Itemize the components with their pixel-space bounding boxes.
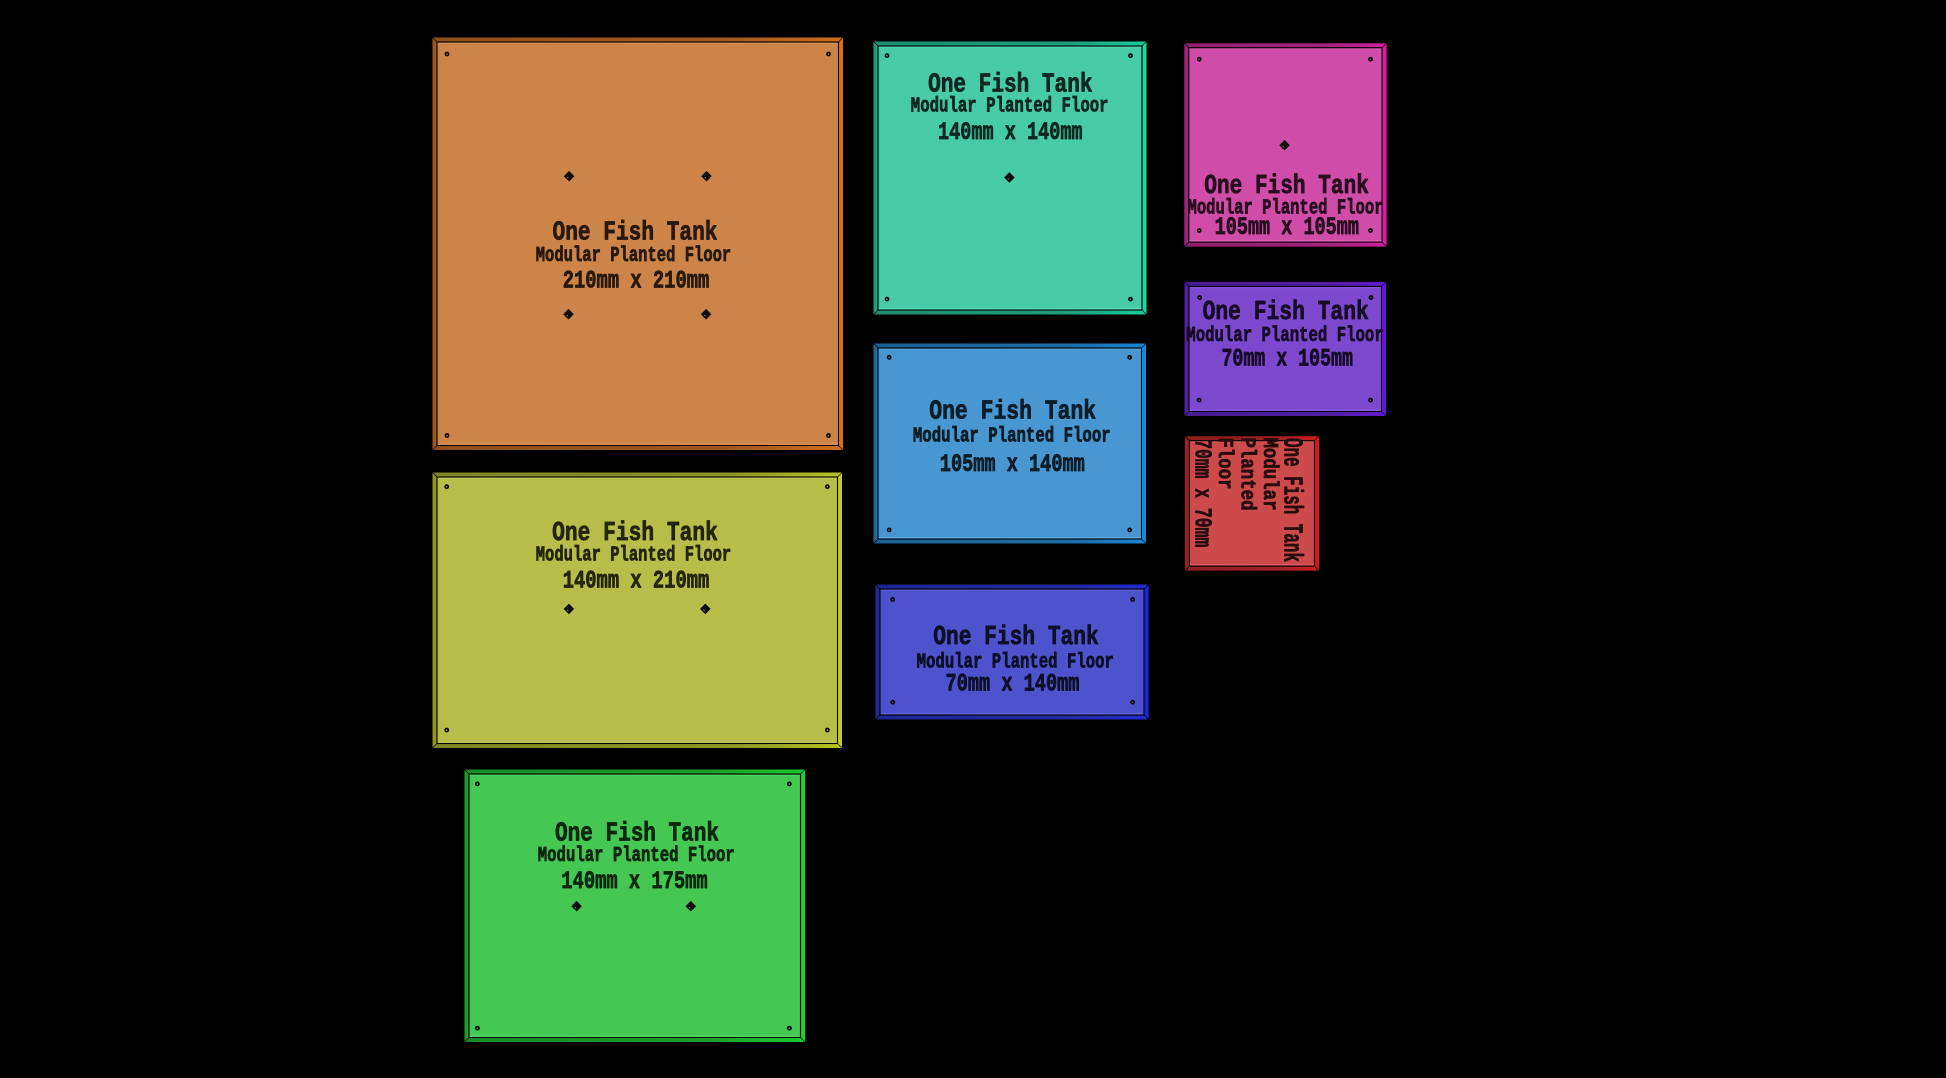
svg-text:One Fish Tank: One Fish Tank xyxy=(1277,438,1307,562)
svg-text:105mm x 140mm: 105mm x 140mm xyxy=(940,451,1085,479)
svg-text:105mm x 105mm: 105mm x 105mm xyxy=(1215,214,1359,242)
svg-text:Modular Planted Floor: Modular Planted Floor xyxy=(538,844,735,868)
svg-text:Modular: Modular xyxy=(1257,438,1280,511)
svg-text:Modular Planted Floor: Modular Planted Floor xyxy=(536,544,732,568)
svg-text:Modular Planted Floor: Modular Planted Floor xyxy=(536,244,732,268)
svg-text:70mm x 105mm: 70mm x 105mm xyxy=(1221,346,1353,374)
svg-text:One Fish Tank: One Fish Tank xyxy=(929,398,1096,428)
svg-text:Modular Planted Floor: Modular Planted Floor xyxy=(913,425,1111,449)
svg-text:210mm x 210mm: 210mm x 210mm xyxy=(563,267,710,295)
svg-text:Modular Planted Floor: Modular Planted Floor xyxy=(1186,324,1383,348)
svg-text:140mm x 140mm: 140mm x 140mm xyxy=(938,119,1083,147)
svg-text:70mm x 70mm: 70mm x 70mm xyxy=(1188,439,1215,547)
svg-text:70mm x 140mm: 70mm x 140mm xyxy=(946,670,1080,698)
svg-text:One Fish Tank: One Fish Tank xyxy=(933,623,1099,653)
svg-text:140mm x 175mm: 140mm x 175mm xyxy=(561,868,707,896)
svg-text:Planted: Planted xyxy=(1234,438,1257,511)
svg-text:Modular Planted Floor: Modular Planted Floor xyxy=(911,95,1109,119)
svg-text:140mm x 210mm: 140mm x 210mm xyxy=(563,568,710,596)
